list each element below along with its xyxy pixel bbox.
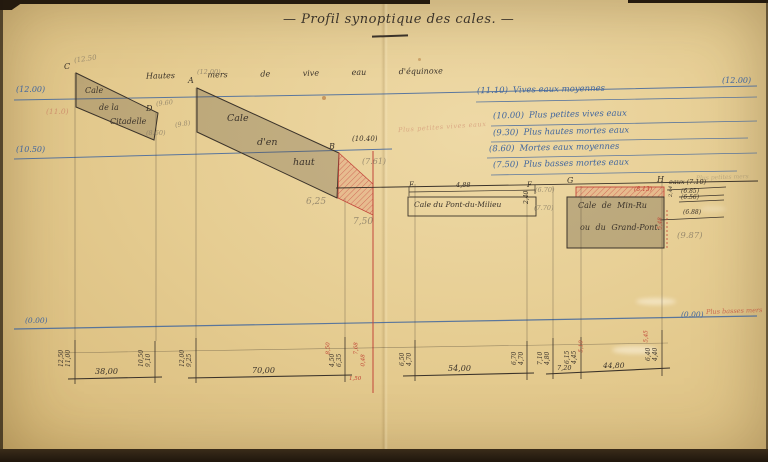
tide-level: (9.30) bbox=[493, 129, 519, 138]
tide-underline-1 bbox=[476, 97, 757, 102]
elevation-zero-right: (0.00) bbox=[681, 311, 704, 319]
cale-citadelle-line2: de la bbox=[99, 104, 119, 112]
span-38-00: 38,00 bbox=[95, 368, 118, 376]
cale-en-haut-shape bbox=[197, 88, 373, 215]
span-70-00: 70,00 bbox=[252, 367, 275, 375]
pencil-7-61: (7.61) bbox=[362, 158, 386, 166]
cale-citadelle-line3: Citadelle bbox=[110, 118, 146, 126]
red-dim-5-10: 5,10 bbox=[580, 340, 586, 352]
tide-level: (10.00) bbox=[493, 112, 524, 121]
tide-underline-3 bbox=[491, 138, 748, 142]
pencil-d-lower: (8.60) bbox=[146, 130, 166, 137]
pencil-6-70: (6.70) bbox=[535, 187, 555, 194]
post-dim: 9,25 bbox=[187, 354, 193, 367]
post-dim: 4,70 bbox=[519, 352, 525, 365]
pencil-citadelle-red: (11.0) bbox=[46, 108, 69, 116]
point-a: A bbox=[188, 77, 194, 85]
tide-text: Plus basses mortes eaux bbox=[523, 159, 629, 170]
red-dim-0-48: 0,48 bbox=[362, 354, 368, 366]
cale-haut-line2: d'en bbox=[257, 138, 277, 148]
tide-text: Plus hautes mortes eaux bbox=[523, 127, 629, 138]
point-g: G bbox=[567, 177, 573, 185]
pencil-9-87: (9.87) bbox=[677, 232, 703, 241]
post-dim: 4,40 bbox=[653, 348, 659, 361]
archival-profile-drawing: — Profil synoptique des cales. — Hautes … bbox=[0, 0, 768, 462]
post-dim: 4,70 bbox=[407, 353, 413, 366]
point-e: E bbox=[409, 182, 414, 189]
pencil-6-25: 6,25 bbox=[306, 198, 326, 207]
right-level-6-56: (6.56) bbox=[681, 195, 699, 201]
tide-text: Plus petites vives eaux bbox=[529, 110, 627, 121]
point-c: C bbox=[64, 63, 70, 71]
cale-grand-pont-line2: ou du Grand-Pont. bbox=[580, 224, 660, 232]
red-vertical-5-48: 5,48 bbox=[659, 217, 665, 229]
point-d: D bbox=[146, 105, 152, 113]
point-h: H bbox=[657, 176, 664, 184]
point-f: F bbox=[527, 182, 532, 189]
red-dim-7-68: 7,68 bbox=[355, 342, 361, 354]
grand-pont-red-elevation: (8.13) bbox=[634, 187, 652, 193]
dimension-4-88: 4,88 bbox=[456, 182, 470, 189]
post-dim: 11,00 bbox=[66, 350, 72, 367]
cale-grand-pont-line1: Cale de Min-Ru bbox=[578, 202, 647, 210]
span-44-80: 44,80 bbox=[603, 362, 624, 370]
span-54-00: 54,00 bbox=[448, 365, 471, 373]
right-tick-2-44: 2,44 bbox=[669, 186, 674, 197]
elevation-mid-left: (10.50) bbox=[16, 146, 45, 154]
span-7-20: 7,20 bbox=[557, 365, 571, 372]
red-dim-5-45: 5,45 bbox=[645, 330, 651, 342]
zero-line-red-note: Plus basses mers bbox=[706, 307, 763, 315]
tide-level: (8.60) bbox=[489, 145, 515, 154]
red-dim-8-50: 8,50 bbox=[327, 342, 333, 354]
cale-grand-pont-shape bbox=[567, 187, 664, 248]
line-zero bbox=[14, 316, 757, 329]
cale-citadelle-line1: Cale bbox=[85, 87, 103, 95]
pencil-7-70: (7.70) bbox=[534, 205, 554, 212]
tide-level: (11.10) bbox=[477, 87, 508, 96]
dimension-line-4-88 bbox=[409, 190, 535, 192]
red-dim-1-50: 1,50 bbox=[349, 377, 361, 383]
post-dim: 4,80 bbox=[545, 352, 551, 365]
cale-milieu-label: Cale du Pont-du-Milieu bbox=[414, 201, 501, 209]
cale-haut-line3: haut bbox=[293, 158, 315, 168]
post-dim: 9,10 bbox=[146, 354, 152, 367]
drawing-title: — Profil synoptique des cales. — bbox=[283, 13, 514, 26]
cale-haut-line1: Cale bbox=[227, 114, 249, 124]
tide-text: Mortes eaux moyennes bbox=[519, 143, 619, 154]
pencil-7-50: 7,50 bbox=[353, 218, 373, 227]
tide-text: Vives eaux moyennes bbox=[513, 85, 605, 95]
elevation-top-left: (12.00) bbox=[16, 86, 45, 94]
point-b: B bbox=[329, 143, 335, 151]
elevation-near-b: (10.40) bbox=[352, 136, 378, 143]
elevation-top-right: (12.00) bbox=[722, 77, 751, 85]
elevation-zero-left: (0.00) bbox=[25, 317, 48, 325]
post-dim: 6,35 bbox=[337, 354, 343, 367]
dimension-2-40: 2,40 bbox=[524, 191, 530, 204]
pencil-elevation-a: (12.00) bbox=[197, 69, 221, 76]
post-dim: 4,45 bbox=[572, 351, 578, 364]
right-level-6-88: (6.88) bbox=[683, 210, 701, 216]
right-level-7-10: eaux (7.10) bbox=[669, 179, 706, 186]
tide-level: (7.50) bbox=[493, 161, 519, 170]
pencil-elevation-d: (9.60 bbox=[156, 99, 174, 107]
